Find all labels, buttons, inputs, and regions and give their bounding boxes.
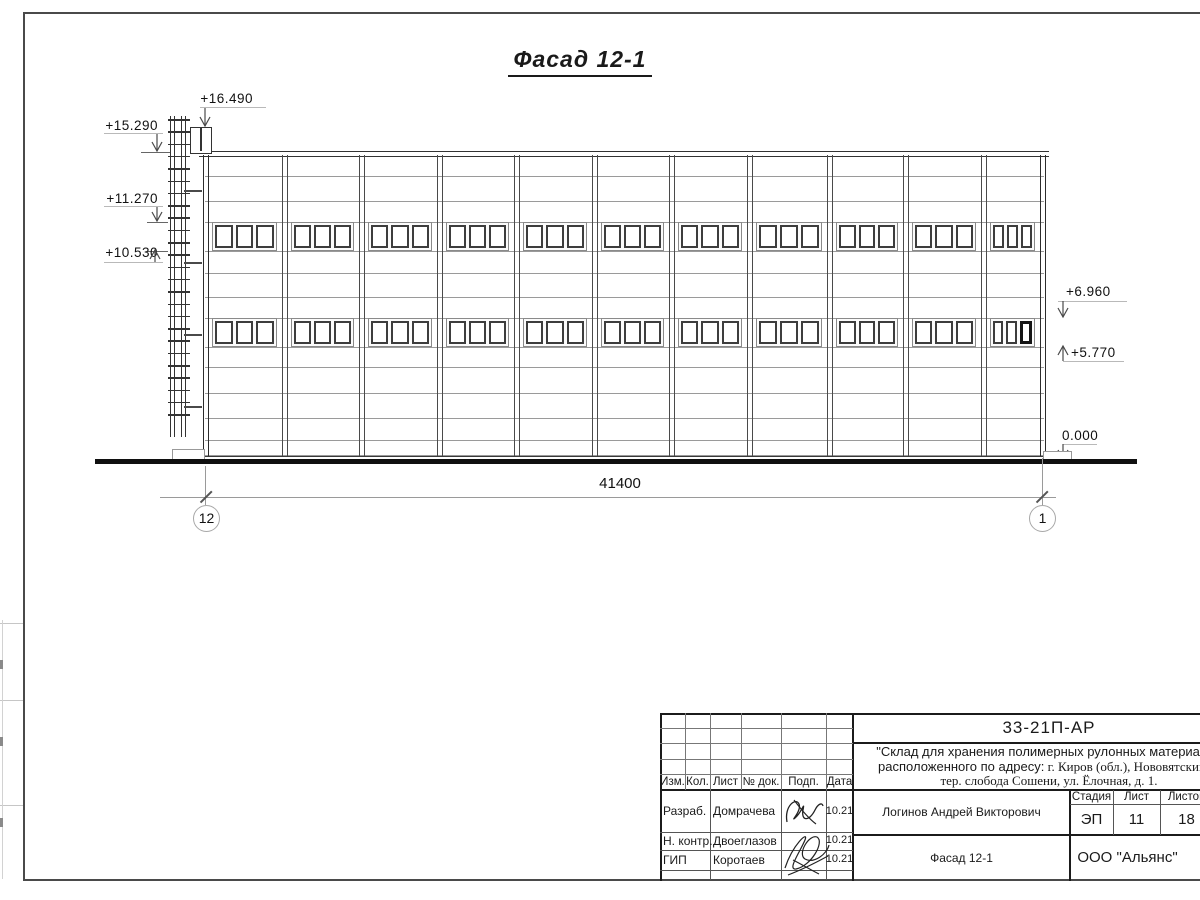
window bbox=[678, 222, 742, 251]
window-pane bbox=[624, 321, 641, 344]
level-arrow bbox=[151, 207, 163, 221]
panel-joint-line bbox=[205, 251, 1044, 252]
window-pane bbox=[878, 321, 895, 344]
window-pane bbox=[526, 225, 543, 248]
stage-header: Стадия bbox=[1070, 790, 1113, 804]
elevation-mark-label: +15.290 bbox=[55, 118, 158, 133]
sig-name-0: Домрачева bbox=[713, 802, 779, 820]
window-pane bbox=[839, 225, 856, 248]
window-pane bbox=[681, 225, 698, 248]
window-pane bbox=[701, 225, 718, 248]
window-pane bbox=[215, 225, 233, 248]
panel-joint-line bbox=[205, 176, 1044, 177]
window-pane bbox=[859, 225, 876, 248]
ladder-rung bbox=[168, 230, 190, 232]
window-pane bbox=[935, 321, 952, 344]
ladder-bracket bbox=[184, 334, 202, 336]
ladder-rung bbox=[168, 156, 190, 158]
ladder-rung bbox=[168, 131, 190, 133]
window-pane bbox=[489, 225, 506, 248]
elevation-leader-line bbox=[1063, 361, 1124, 362]
sig-name-2: Коротаев bbox=[713, 851, 779, 868]
level-arrow bbox=[1057, 346, 1069, 361]
ladder-rung bbox=[168, 242, 190, 244]
window-pane bbox=[391, 225, 408, 248]
axis-bubble-12: 12 bbox=[193, 505, 220, 532]
column-line bbox=[1040, 155, 1046, 456]
col-kol: Кол. bbox=[685, 774, 710, 790]
window bbox=[291, 222, 354, 251]
window bbox=[756, 222, 822, 251]
ladder-rung bbox=[168, 279, 190, 281]
column-line bbox=[203, 155, 209, 456]
window-pane bbox=[294, 225, 311, 248]
window-pane bbox=[334, 321, 351, 344]
window bbox=[912, 318, 976, 347]
window-pane bbox=[878, 225, 895, 248]
ladder-rung bbox=[168, 205, 190, 207]
window bbox=[601, 222, 664, 251]
elevation-mark-label: +16.490 bbox=[150, 91, 253, 106]
panel-joint-line bbox=[205, 273, 1044, 274]
column-line bbox=[592, 155, 598, 456]
window-pane bbox=[391, 321, 408, 344]
project-description: "Склад для хранения полимерных рулонных … bbox=[853, 745, 1200, 789]
project-line-2: расположенного по адресу: г. Киров (обл.… bbox=[853, 760, 1200, 775]
window-pane bbox=[956, 225, 973, 248]
tb-grid bbox=[660, 743, 853, 744]
ladder-rung bbox=[168, 328, 190, 330]
window bbox=[291, 318, 354, 347]
panel-joint-line bbox=[205, 418, 1044, 419]
window-pane bbox=[935, 225, 952, 248]
company-name: ООО "Альянс" bbox=[1070, 836, 1200, 879]
window-pane bbox=[314, 225, 331, 248]
window-pane bbox=[759, 225, 777, 248]
col-izm: Изм. bbox=[660, 774, 685, 790]
drawing-sheet: { "sheet": { "title": "Фасад 12-1" }, "m… bbox=[0, 0, 1200, 900]
ladder-bracket bbox=[184, 190, 202, 192]
level-arrow bbox=[199, 108, 211, 126]
window-pane bbox=[915, 321, 932, 344]
stage-value: ЭП bbox=[1070, 804, 1113, 834]
window-pane bbox=[915, 225, 932, 248]
panel-joint-line bbox=[205, 393, 1044, 394]
ladder-rung bbox=[168, 402, 190, 404]
ladder-rung bbox=[168, 390, 190, 392]
ladder-rung bbox=[168, 304, 190, 306]
window-pane bbox=[412, 225, 429, 248]
dimension-line bbox=[160, 497, 1056, 498]
ladder-rung bbox=[168, 144, 190, 146]
sheet-header: Лист bbox=[1113, 790, 1160, 804]
elevation-mark-label: +6.960 bbox=[1066, 284, 1136, 299]
tb-border bbox=[660, 713, 662, 881]
window-pane bbox=[681, 321, 698, 344]
sig-role-2: ГИП bbox=[663, 851, 713, 868]
window-pane bbox=[294, 321, 311, 344]
ladder-rung bbox=[168, 217, 190, 219]
column-line bbox=[282, 155, 288, 456]
base-slab-line bbox=[178, 456, 1068, 457]
ladder-bracket bbox=[184, 406, 202, 408]
project-line-1: "Склад для хранения полимерных рулонных … bbox=[853, 745, 1200, 760]
ladder-rung bbox=[168, 316, 190, 318]
sig-name-1: Двоеглазов bbox=[713, 833, 779, 849]
column-line bbox=[827, 155, 833, 456]
overall-dimension: 41400 bbox=[560, 475, 680, 492]
ladder-rung bbox=[168, 254, 190, 256]
window-pane bbox=[1006, 321, 1016, 344]
window bbox=[756, 318, 822, 347]
panel-joint-line bbox=[205, 201, 1044, 202]
ladder-rung bbox=[168, 193, 190, 195]
sheets-header: Листов bbox=[1160, 790, 1200, 804]
window-pane bbox=[956, 321, 973, 344]
window-pane bbox=[780, 225, 798, 248]
ladder-rung bbox=[168, 168, 190, 170]
elevation-mark-label: +11.270 bbox=[55, 191, 158, 206]
level-arrow bbox=[1057, 301, 1069, 317]
level-arrow bbox=[149, 250, 161, 262]
window-pane bbox=[1021, 225, 1032, 248]
panel-joint-line bbox=[205, 440, 1044, 441]
elevation-mark-label: +5.770 bbox=[1071, 345, 1141, 360]
sig-role-0: Разраб. bbox=[663, 802, 709, 820]
column-line bbox=[747, 155, 753, 456]
ladder-rung bbox=[168, 414, 190, 416]
extension-line-left bbox=[205, 466, 206, 505]
level-stub bbox=[147, 222, 168, 223]
ladder-rung bbox=[168, 119, 190, 121]
tb-grid bbox=[660, 728, 853, 729]
window bbox=[990, 222, 1035, 251]
sheet-value: 11 bbox=[1113, 804, 1160, 834]
panel-joint-line bbox=[205, 367, 1044, 368]
panel-joint-line bbox=[205, 297, 1044, 298]
window-pane bbox=[449, 225, 466, 248]
window-pane bbox=[449, 321, 466, 344]
window-pane bbox=[469, 321, 486, 344]
window bbox=[446, 318, 509, 347]
window bbox=[836, 318, 898, 347]
window-pane bbox=[314, 321, 331, 344]
col-ndok: № док. bbox=[741, 774, 781, 790]
window-pane bbox=[489, 321, 506, 344]
ladder-rung bbox=[168, 365, 190, 367]
window-pane bbox=[624, 225, 641, 248]
window bbox=[212, 318, 277, 347]
window-pane bbox=[256, 321, 274, 344]
ground-line bbox=[95, 459, 1137, 464]
drawing-name-cell: Фасад 12-1 bbox=[853, 836, 1070, 879]
window-pane bbox=[801, 225, 819, 248]
window-pane bbox=[469, 225, 486, 248]
window-pane bbox=[801, 321, 819, 344]
column-line bbox=[981, 155, 987, 456]
window-pane bbox=[236, 225, 254, 248]
axis-bubble-1: 1 bbox=[1029, 505, 1056, 532]
window bbox=[601, 318, 664, 347]
window bbox=[446, 222, 509, 251]
window-pane bbox=[604, 321, 621, 344]
column-line bbox=[359, 155, 365, 456]
col-podp: Подп. bbox=[781, 774, 826, 790]
window-pane bbox=[526, 321, 543, 344]
elevation-mark-label: +10.530 bbox=[55, 245, 158, 260]
signature-razrab bbox=[782, 794, 826, 830]
window-pane bbox=[236, 321, 254, 344]
window-pane bbox=[604, 225, 621, 248]
window bbox=[990, 318, 1035, 347]
window-pane bbox=[546, 321, 563, 344]
window-pane bbox=[412, 321, 429, 344]
column-line bbox=[903, 155, 909, 456]
column-line bbox=[514, 155, 520, 456]
window bbox=[912, 222, 976, 251]
ladder-exit-box-divider bbox=[200, 128, 202, 151]
window bbox=[368, 222, 432, 251]
ladder-bracket bbox=[184, 262, 202, 264]
window-pane bbox=[993, 321, 1003, 344]
window bbox=[836, 222, 898, 251]
window-pane bbox=[644, 321, 661, 344]
level-arrow bbox=[151, 134, 163, 151]
elevation-mark-label: 0.000 bbox=[1062, 428, 1132, 443]
window-pane bbox=[759, 321, 777, 344]
tb-grid bbox=[660, 759, 853, 760]
window-pane bbox=[215, 321, 233, 344]
panel-joint-line bbox=[205, 347, 1044, 348]
window-pane bbox=[567, 225, 584, 248]
col-data: Дата bbox=[826, 774, 853, 790]
col-list: Лист bbox=[710, 774, 741, 790]
doc-number: 33-21П-АР bbox=[853, 713, 1200, 743]
window-pane bbox=[722, 225, 739, 248]
signature-nkontr-gip bbox=[781, 826, 831, 878]
window bbox=[212, 222, 277, 251]
window bbox=[523, 318, 587, 347]
parapet-coping bbox=[199, 151, 1049, 157]
sig-role-1: Н. контр. bbox=[663, 833, 713, 849]
window-pane bbox=[371, 321, 388, 344]
window-pane bbox=[546, 225, 563, 248]
ladder-rung bbox=[168, 340, 190, 342]
window-pane bbox=[722, 321, 739, 344]
window bbox=[678, 318, 742, 347]
ladder-rung bbox=[168, 377, 190, 379]
column-line bbox=[437, 155, 443, 456]
sheets-value: 18 bbox=[1160, 804, 1200, 834]
window-pane bbox=[334, 225, 351, 248]
window-pane bbox=[567, 321, 584, 344]
ladder-rung bbox=[168, 181, 190, 183]
window-pane bbox=[256, 225, 274, 248]
window-pane bbox=[701, 321, 718, 344]
window-pane bbox=[839, 321, 856, 344]
elevation-leader-line bbox=[104, 262, 163, 263]
ladder-rung bbox=[168, 291, 190, 293]
author-name: Логинов Андрей Викторович bbox=[853, 790, 1070, 834]
column-line bbox=[669, 155, 675, 456]
window-pane bbox=[780, 321, 798, 344]
project-line-3: тер. слобода Сошени, ул. Ёлочная, д. 1. bbox=[853, 774, 1200, 789]
window bbox=[368, 318, 432, 347]
window-pane bbox=[644, 225, 661, 248]
sig-date-0: 10.21 bbox=[826, 802, 853, 820]
level-stub bbox=[141, 152, 170, 153]
window-pane bbox=[371, 225, 388, 248]
window-pane bbox=[993, 225, 1004, 248]
window-pane bbox=[1007, 225, 1018, 248]
ladder-rung bbox=[168, 267, 190, 269]
window bbox=[523, 222, 587, 251]
ladder-rung bbox=[168, 353, 190, 355]
window-pane bbox=[859, 321, 876, 344]
window-pane bbox=[1020, 321, 1032, 344]
